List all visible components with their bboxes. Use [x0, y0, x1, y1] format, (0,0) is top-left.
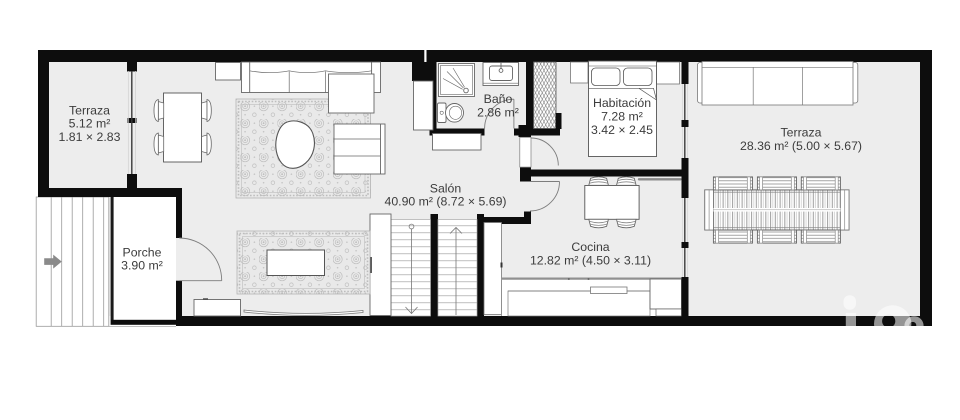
svg-text:7.28 m²: 7.28 m² — [601, 109, 643, 123]
svg-text:5.12 m²: 5.12 m² — [69, 117, 111, 131]
svg-text:40.90 m² (8.72 × 5.69): 40.90 m² (8.72 × 5.69) — [384, 195, 506, 209]
svg-text:1.81 × 2.83: 1.81 × 2.83 — [59, 130, 121, 144]
svg-text:3.42 × 2.45: 3.42 × 2.45 — [591, 123, 653, 137]
svg-text:Porche: Porche — [123, 246, 162, 260]
svg-text:2.86 m²: 2.86 m² — [477, 105, 519, 119]
svg-text:Terraza: Terraza — [69, 103, 110, 117]
svg-text:28.36 m² (5.00 × 5.67): 28.36 m² (5.00 × 5.67) — [740, 139, 862, 153]
svg-text:3.90 m²: 3.90 m² — [121, 259, 163, 273]
svg-text:Terraza: Terraza — [780, 125, 821, 139]
svg-text:Salón: Salón — [430, 181, 462, 195]
svg-text:Cocina: Cocina — [571, 240, 609, 254]
svg-text:12.82 m² (4.50 × 3.11): 12.82 m² (4.50 × 3.11) — [530, 254, 651, 268]
svg-text:Habitación: Habitación — [593, 96, 651, 110]
svg-text:Baño: Baño — [484, 92, 513, 106]
